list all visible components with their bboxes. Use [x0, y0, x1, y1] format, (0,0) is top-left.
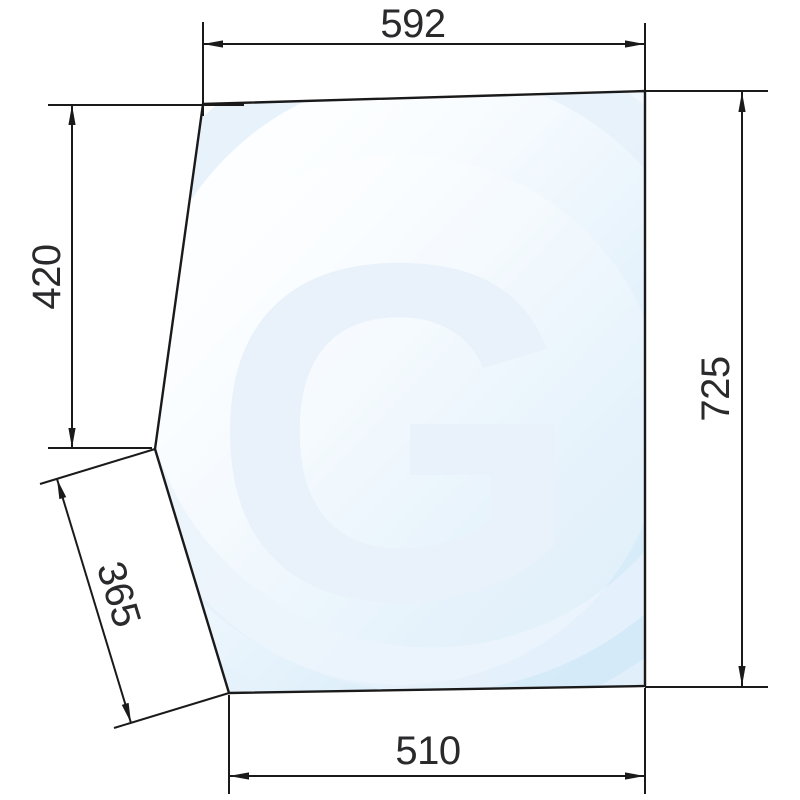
- extension-line: [40, 449, 155, 484]
- dim-label-right: 725: [694, 356, 738, 421]
- dim-label-top: 592: [380, 2, 445, 46]
- dim-label-lower-left: 365: [88, 557, 149, 632]
- watermark-letter-g: G: [210, 163, 583, 700]
- glass-pane: G: [48, 0, 800, 742]
- dimension-bottom: 510: [229, 688, 645, 794]
- technical-drawing: G 592 420 365: [0, 0, 800, 800]
- drawing-canvas: G 592 420 365: [0, 0, 800, 800]
- dim-label-bottom: 510: [395, 729, 460, 773]
- dim-label-left: 420: [25, 244, 69, 309]
- dimension-right: 725: [645, 91, 768, 687]
